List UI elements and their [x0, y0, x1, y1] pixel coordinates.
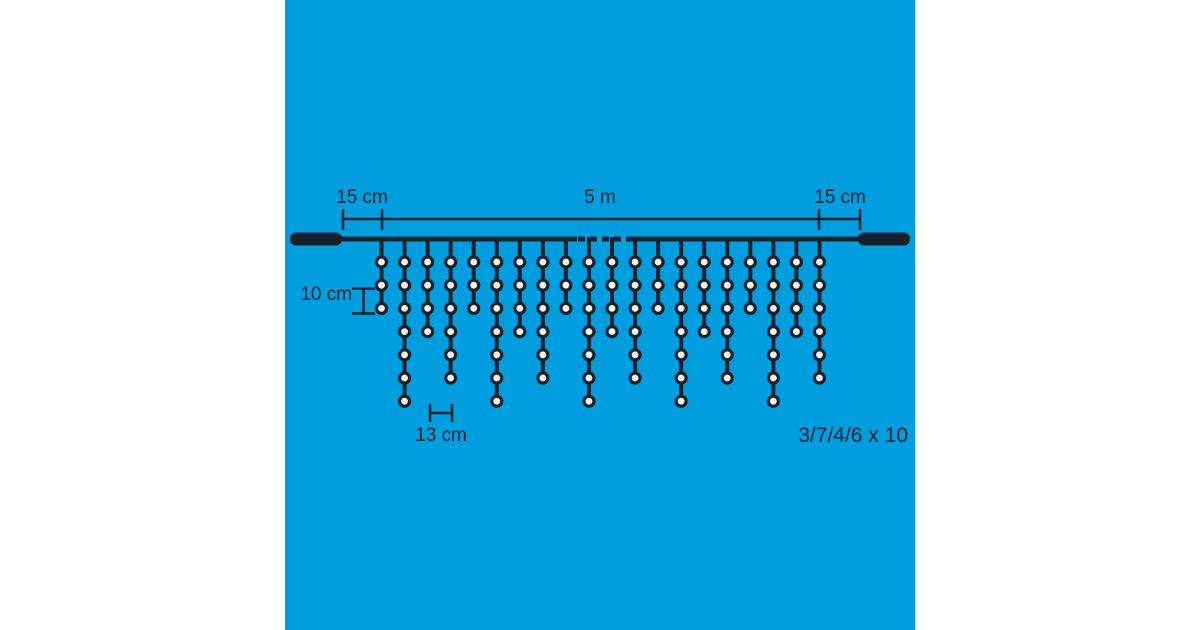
light-bulb-icon [469, 257, 479, 267]
light-bulb-icon [630, 373, 640, 383]
light-bulb-icon [538, 257, 548, 267]
light-bulb-icon [630, 350, 640, 360]
light-bulb-icon [699, 303, 709, 313]
diagram-svg: 15 cm 5 m 15 cm 10 cm 13 cm [0, 0, 1200, 630]
light-bulb-icon [768, 257, 778, 267]
light-bulb-icon [377, 303, 387, 313]
light-bulb-icon [722, 257, 732, 267]
light-bulb-icon [492, 257, 502, 267]
light-bulb-icon [538, 350, 548, 360]
light-bulb-icon [538, 373, 548, 383]
light-bulb-icon [492, 280, 502, 290]
light-bulb-icon [745, 280, 755, 290]
light-bulb-icon [722, 373, 732, 383]
light-bulb-icon [630, 327, 640, 337]
light-bulb-icon [400, 373, 410, 383]
bulb-spacing-label: 10 cm [300, 284, 352, 305]
light-bulb-icon [469, 280, 479, 290]
light-bulb-icon [538, 303, 548, 313]
light-bulb-icon [768, 373, 778, 383]
light-bulb-icon [515, 257, 525, 267]
light-bulb-icon [423, 280, 433, 290]
light-bulb-icon [446, 280, 456, 290]
light-bulb-icon [676, 303, 686, 313]
light-bulb-icon [423, 327, 433, 337]
light-bulb-icon [469, 303, 479, 313]
light-bulb-icon [676, 396, 686, 406]
light-bulb-icon [400, 350, 410, 360]
light-bulb-icon [400, 303, 410, 313]
light-bulb-icon [492, 396, 502, 406]
light-bulb-icon [446, 303, 456, 313]
light-bulb-icon [676, 373, 686, 383]
light-bulb-icon [814, 280, 824, 290]
light-bulb-icon [676, 257, 686, 267]
light-bulb-icon [377, 257, 387, 267]
light-bulb-icon [492, 303, 502, 313]
light-bulb-icon [400, 396, 410, 406]
light-bulb-icon [768, 280, 778, 290]
light-bulb-icon [630, 303, 640, 313]
light-bulb-icon [584, 350, 594, 360]
light-bulb-icon [676, 327, 686, 337]
light-bulb-icon [768, 350, 778, 360]
light-bulb-icon [584, 373, 594, 383]
light-bulb-icon [561, 257, 571, 267]
light-bulb-icon [768, 396, 778, 406]
light-bulb-icon [492, 350, 502, 360]
main-span-dimension-label: 5 m [584, 187, 616, 208]
light-bulb-icon [791, 280, 801, 290]
light-bulb-icon [676, 280, 686, 290]
light-bulb-icon [653, 303, 663, 313]
light-bulb-icon [630, 280, 640, 290]
light-bulb-icon [722, 350, 732, 360]
lead-left-dimension-label: 15 cm [336, 187, 388, 208]
light-bulb-icon [791, 257, 801, 267]
light-bulb-icon [400, 327, 410, 337]
light-bulb-icon [584, 280, 594, 290]
light-bulb-icon [584, 303, 594, 313]
light-bulb-icon [768, 327, 778, 337]
light-bulb-icon [423, 303, 433, 313]
light-bulb-icon [722, 280, 732, 290]
light-bulb-icon [814, 327, 824, 337]
light-bulb-icon [768, 303, 778, 313]
light-bulb-icon [814, 373, 824, 383]
light-bulb-icon [400, 257, 410, 267]
light-bulb-icon [446, 373, 456, 383]
light-bulb-icon [561, 303, 571, 313]
light-bulb-icon [699, 327, 709, 337]
light-bulb-icon [584, 327, 594, 337]
light-bulb-icon [791, 303, 801, 313]
drop-spacing-label: 13 cm [415, 425, 467, 446]
light-bulb-icon [791, 327, 801, 337]
light-bulb-icon [400, 280, 410, 290]
light-bulb-icon [745, 257, 755, 267]
left-plug-connector-icon [290, 233, 342, 246]
light-bulb-icon [446, 327, 456, 337]
light-bulb-icon [699, 280, 709, 290]
light-bulb-icon [607, 327, 617, 337]
right-plug-connector-icon [858, 233, 910, 246]
light-bulb-icon [538, 327, 548, 337]
light-bulb-icon [653, 257, 663, 267]
light-bulb-icon [446, 257, 456, 267]
light-bulb-icon [584, 257, 594, 267]
light-bulb-icon [814, 350, 824, 360]
light-bulb-icon [653, 280, 663, 290]
light-bulb-icon [814, 257, 824, 267]
page: 15 cm 5 m 15 cm 10 cm 13 cm [0, 0, 1200, 630]
light-bulb-icon [699, 257, 709, 267]
light-bulb-icon [377, 280, 387, 290]
light-bulb-icon [814, 303, 824, 313]
light-bulb-icon [515, 327, 525, 337]
light-bulb-icon [446, 350, 456, 360]
light-bulb-icon [561, 280, 571, 290]
lead-right-dimension-label: 15 cm [814, 187, 866, 208]
light-bulb-icon [676, 350, 686, 360]
light-bulb-icon [584, 396, 594, 406]
light-bulb-icon [630, 257, 640, 267]
light-bulb-icon [607, 303, 617, 313]
bulb-pattern-label: 3/7/4/6 x 10 [798, 424, 908, 447]
light-bulb-icon [722, 303, 732, 313]
light-bulb-icon [538, 280, 548, 290]
light-bulb-icon [745, 303, 755, 313]
light-bulb-icon [515, 303, 525, 313]
light-bulb-icon [423, 257, 433, 267]
light-bulb-icon [492, 373, 502, 383]
light-bulb-icon [722, 327, 732, 337]
light-bulb-icon [607, 280, 617, 290]
light-bulb-icon [515, 280, 525, 290]
light-bulb-icon [492, 327, 502, 337]
light-bulb-icon [607, 257, 617, 267]
